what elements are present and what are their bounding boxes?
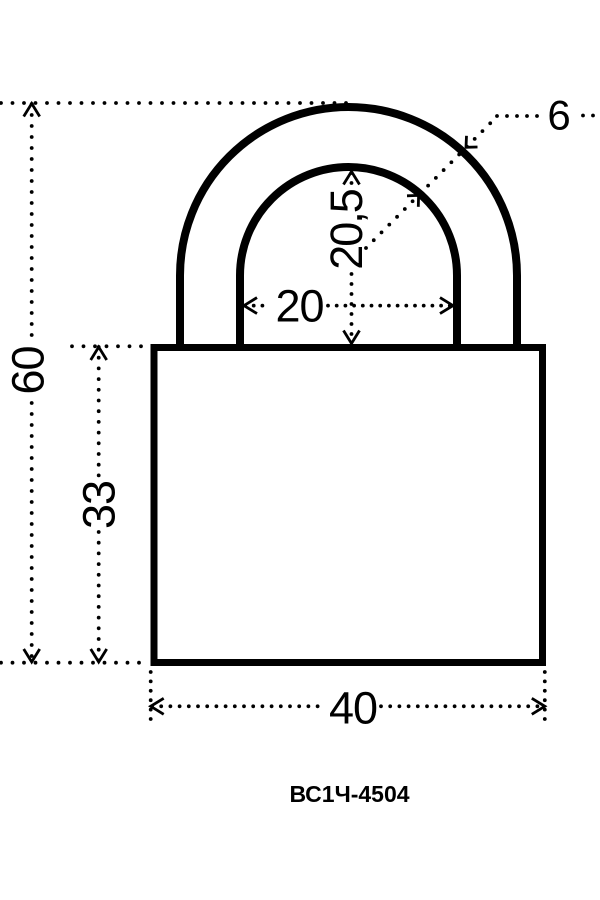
svg-text:6: 6 [547,92,570,139]
svg-text:33: 33 [74,481,125,529]
svg-text:20: 20 [275,281,323,332]
svg-text:ВС1Ч-4504: ВС1Ч-4504 [289,781,409,807]
svg-text:60: 60 [3,346,54,394]
svg-text:20,5: 20,5 [321,189,372,270]
svg-text:40: 40 [329,683,377,734]
